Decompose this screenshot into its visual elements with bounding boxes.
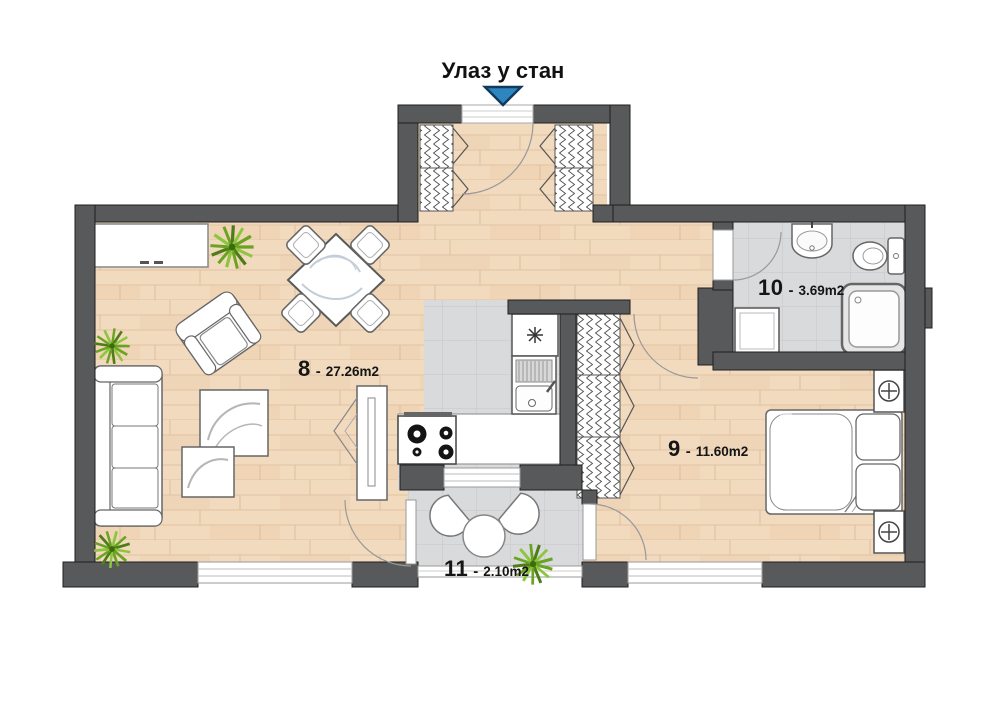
page-title: Улаз у стан bbox=[400, 58, 606, 84]
balcony-table bbox=[463, 515, 505, 557]
kitchen-sink bbox=[512, 356, 556, 414]
room-11-number: 11 bbox=[444, 556, 468, 582]
pillow bbox=[856, 464, 900, 510]
shower bbox=[842, 284, 906, 354]
coffee-table-small bbox=[182, 447, 234, 497]
room-8-area: 27.26m2 bbox=[326, 364, 379, 379]
room-10-number: 10 bbox=[758, 275, 783, 301]
room-10-separator: - bbox=[788, 282, 793, 299]
room-11-area: 2.10m2 bbox=[483, 564, 529, 579]
room-9-separator: - bbox=[686, 443, 691, 460]
stove bbox=[398, 412, 456, 464]
room-8-number: 8 bbox=[298, 356, 311, 382]
room-9-area: 11.60m2 bbox=[696, 444, 749, 459]
fridge bbox=[512, 314, 558, 356]
nightstand bbox=[874, 511, 904, 553]
balcony-window bbox=[444, 468, 520, 487]
room-label-bedroom: 9 - 11.60m2 bbox=[668, 436, 748, 462]
room-label-living: 8 - 27.26m2 bbox=[298, 356, 379, 382]
nightstand bbox=[874, 370, 904, 412]
washing-machine bbox=[735, 308, 779, 354]
room-10-area: 3.69m2 bbox=[798, 283, 844, 298]
room-11-separator: - bbox=[473, 563, 478, 580]
floor-plan-page: obe Улаз у стан 8 - 27.26m2 9 - 11.60m2 … bbox=[0, 0, 1000, 707]
floor-plan-canvas: obe bbox=[0, 0, 1000, 707]
pillow bbox=[856, 414, 900, 460]
coffee-table-large bbox=[200, 390, 268, 456]
bedroom-window bbox=[628, 562, 762, 583]
room-label-balcony: 11 - 2.10m2 bbox=[444, 556, 529, 582]
room-8-separator: - bbox=[316, 363, 321, 380]
sofa bbox=[94, 366, 162, 526]
room-label-bathroom: 10 - 3.69m2 bbox=[758, 275, 844, 301]
entrance-arrow-icon bbox=[485, 87, 521, 105]
sideboard bbox=[93, 224, 208, 267]
living-window bbox=[198, 562, 352, 583]
room-9-number: 9 bbox=[668, 436, 681, 462]
